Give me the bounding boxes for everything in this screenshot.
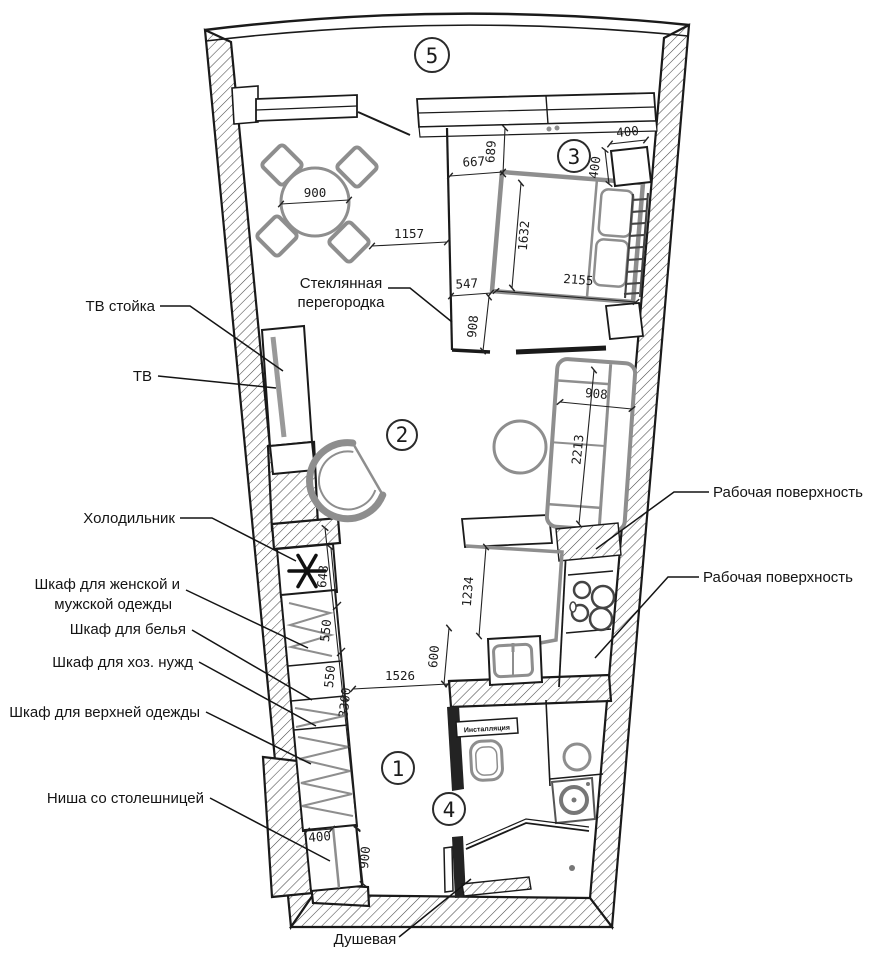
bathroom: Инсталляция [444,718,595,898]
label-worktop-lower: Рабочая поверхность [703,569,853,586]
balcony-inner-wall [206,25,688,41]
dim-547: 547 [455,275,478,291]
washing-machine-corner-dot [586,782,590,786]
label-niche: Ниша со столешницей [47,790,204,807]
label-wardrobe-main-2: мужской одежды [54,596,172,613]
dim-line-600 [444,628,449,684]
ceiling-spot-dot [547,127,552,132]
windows [232,86,657,137]
dim-908-sofa: 908 [584,385,608,402]
bath-counter-edge [546,700,550,786]
room-number-3: 3 [568,145,581,169]
dim-2155: 2155 [563,271,594,288]
label-wardrobe-main-1: Шкаф для женской и [35,576,180,593]
window-sill-connector [232,86,258,124]
burner [592,586,614,608]
wall-bathroom-west [447,706,464,791]
dim-600: 600 [425,645,442,669]
dim-line-400-top [610,140,646,144]
callouts: ТВ стойка ТВ Холодильник Шкаф для женско… [9,275,863,948]
shower-drain-strip [462,877,531,896]
dim-line-547 [451,293,491,296]
label-fridge: Холодильник [83,510,175,527]
counter-outline [466,546,562,643]
dim-400-top: 400 [616,123,640,140]
dim-1157: 1157 [394,226,424,241]
dim-line-1234 [479,547,486,636]
dim-1526: 1526 [385,668,415,683]
pillow [598,189,634,237]
label-tv: ТВ [133,368,152,385]
bed-foot-cabinet [606,303,643,339]
floor-plan-page: Инсталляция 900 689 667 400 400 1157 163… [0,0,878,965]
pillow [593,239,629,287]
dim-line-908-bed [483,297,489,351]
label-tv-stand: ТВ стойка [86,298,156,315]
toilet-seat [475,746,497,775]
bedroom-wall-left-stub [452,350,490,352]
dim-line-667 [450,172,503,176]
worktop-hatched [556,523,621,561]
dim-2213: 2213 [568,434,586,466]
dim-648: 648 [314,565,331,589]
dim-400-niche: 400 [308,828,332,845]
label-wardrobe-household: Шкаф для хоз. нужд [52,654,193,671]
dim-900-niche: 900 [356,846,373,870]
bath-counter-divider [550,774,603,779]
dim-1632: 1632 [515,220,533,251]
label-shower: Душевая [334,931,397,948]
shower-glass-outer [466,823,589,849]
label-worktop-upper: Рабочая поверхность [713,484,863,501]
dim-table: 900 [304,185,327,200]
dim-550-a: 550 [317,619,334,643]
room-number-2: 2 [396,423,409,447]
bath-sink [564,744,590,770]
label-glass-partition-2: перегородка [298,294,386,311]
glass-partition [447,128,452,350]
room-number-5: 5 [426,44,439,68]
dim-550-b: 550 [321,665,338,689]
balcony-outer-wall [205,14,689,30]
nightstand [611,147,651,186]
dim-1234: 1234 [459,576,477,607]
dim-line-1157 [372,242,447,246]
side-table [494,421,546,473]
console-table [462,515,552,547]
dim-908-bed: 908 [464,315,481,339]
dining-set [256,144,378,263]
tv-stand [262,326,312,446]
washing-machine-dot [572,798,577,803]
label-wardrobe-outer: Шкаф для верхней одежды [9,704,200,721]
ceiling-spot-dot [555,126,560,131]
bedroom-wall-right [516,348,606,352]
floor-plan-drawing: Инсталляция 900 689 667 400 400 1157 163… [0,0,878,965]
burner [590,608,612,630]
label-glass-partition-1: Стеклянная [300,275,383,292]
dim-667: 667 [462,153,485,169]
shower-door-handle [444,847,453,892]
stove-knob [570,602,576,612]
sofa [546,358,636,531]
shower-drain-dot [569,865,575,871]
room-number-1: 1 [392,757,405,781]
burner [574,582,590,598]
room-number-4: 4 [443,798,456,822]
stove-top-line [568,571,613,575]
label-wardrobe-linen: Шкаф для белья [70,621,186,638]
leader-glass-partition [388,288,452,322]
balcony-door-swing [358,112,410,135]
dim-line-1526 [353,684,448,689]
